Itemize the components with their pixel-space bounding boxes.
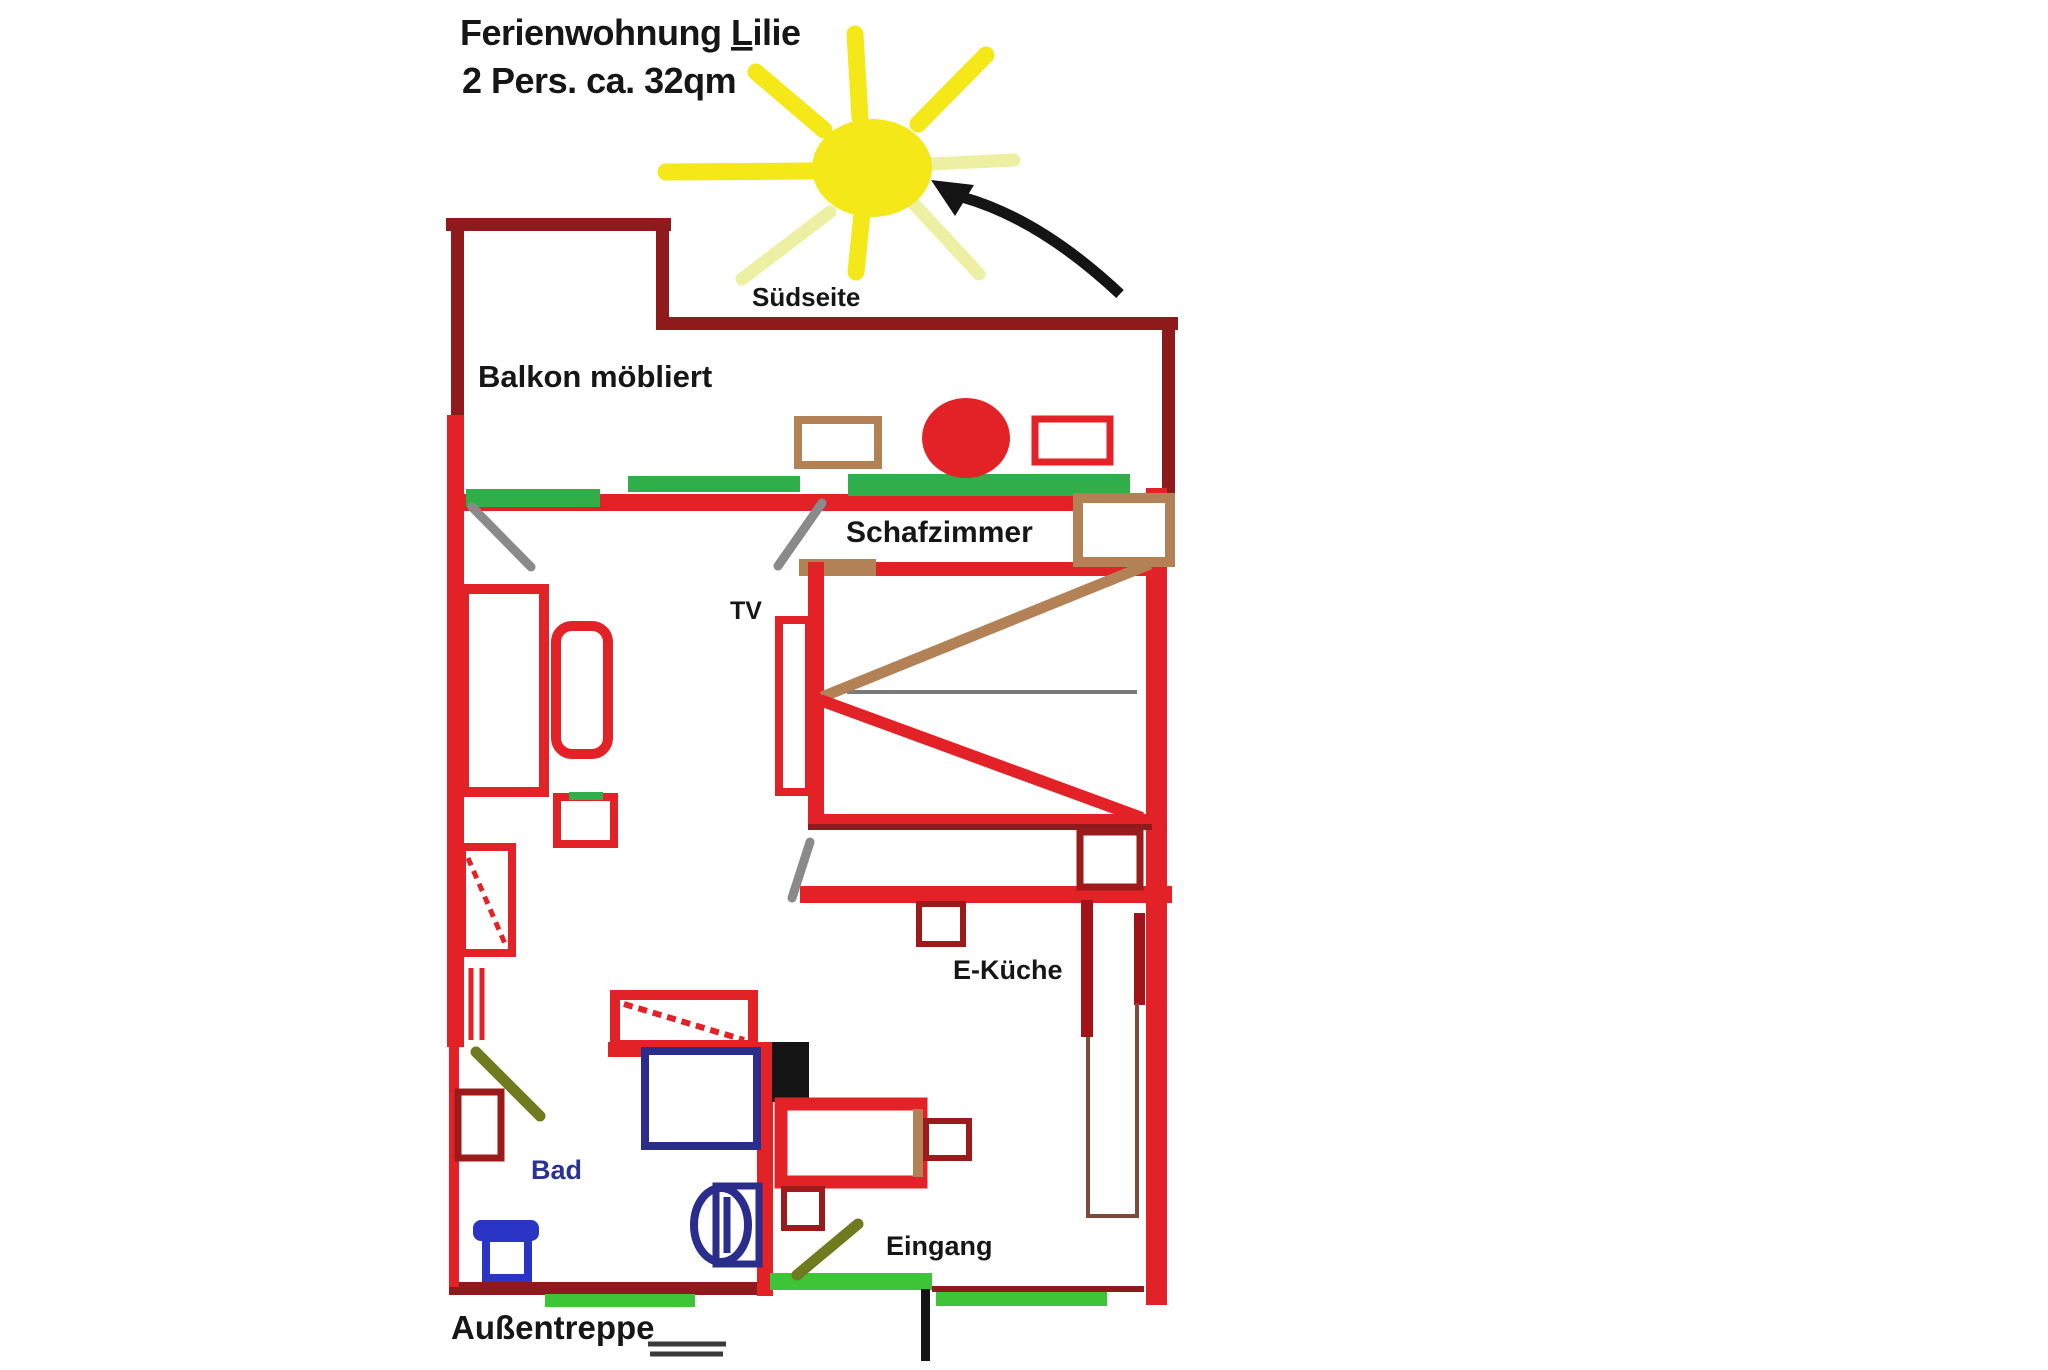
wall-left-lower	[449, 1047, 459, 1287]
floor-plan-page: Ferienwohnung Lilie 2 Pers. ca. 32qm Süd…	[0, 0, 2048, 1365]
label-south-side: Südseite	[752, 282, 860, 312]
bath-sink	[458, 1092, 501, 1158]
floor-plan-drawing: Ferienwohnung Lilie 2 Pers. ca. 32qm Süd…	[0, 0, 2048, 1365]
arrow-shaft	[962, 197, 1120, 294]
label-tv: TV	[730, 597, 762, 625]
wall-balcony-top-left	[446, 218, 671, 231]
toilet-bowl	[486, 1238, 528, 1278]
wall-right-main	[1146, 488, 1167, 1305]
door-swing-entrance	[797, 1224, 858, 1275]
sofa	[464, 589, 544, 792]
balcony-table	[798, 420, 878, 465]
bedroom-nightstand	[1080, 832, 1140, 887]
label-outdoor-stairs: Außentreppe	[451, 1309, 655, 1346]
sun-ray	[930, 160, 1014, 164]
bed-diagonal-brown	[822, 564, 1150, 697]
sun-ray	[918, 55, 986, 124]
label-balcony: Balkon möbliert	[478, 359, 712, 394]
coffee-table	[556, 626, 608, 754]
sun-ray	[914, 204, 979, 274]
bedroom-corner-window	[1078, 498, 1170, 562]
balcony-window-green-mid	[628, 476, 800, 492]
hall-small-cabinet	[784, 1189, 822, 1228]
entry-table-outline	[781, 1104, 921, 1182]
wall-bottom-right-thin	[932, 1286, 1144, 1292]
sun-core	[812, 119, 932, 217]
toilet	[473, 1220, 539, 1278]
bed	[799, 559, 1152, 830]
stove-black-block	[772, 1042, 809, 1102]
label-kitchen: E-Küche	[953, 955, 1063, 985]
kitchen-counter-outline	[1088, 1003, 1137, 1216]
outdoor-stairs-icon	[648, 1344, 726, 1354]
entry-table-brown-edge	[913, 1109, 923, 1177]
sun-ray	[756, 72, 824, 130]
door-swing-balcony-left	[472, 507, 531, 567]
label-bedroom: Schafzimmer	[846, 516, 1033, 549]
entrance-step-green	[936, 1292, 1107, 1306]
page-title: Ferienwohnung Lilie	[460, 12, 801, 53]
bed-bottom-rail	[808, 814, 1152, 825]
page-subtitle: 2 Pers. ca. 32qm	[462, 60, 736, 101]
sun-ray	[666, 171, 812, 172]
balcony-window-green-right	[848, 474, 1130, 496]
bed-diagonal-red	[820, 700, 1142, 818]
kitchen-small-cabinet-top	[919, 904, 963, 944]
kitchen-counter-bar	[1081, 900, 1093, 1037]
sun-ray	[742, 212, 830, 279]
shower-tray	[645, 1051, 757, 1146]
entry-table	[781, 1104, 923, 1182]
bath-vanity	[615, 995, 753, 1045]
tv-stand	[779, 620, 809, 792]
wall-right-inner-stripe	[1134, 913, 1145, 1005]
wall-top-main	[656, 317, 1178, 330]
kitchen-small-cabinet-mid	[926, 1121, 969, 1158]
wall-bottom-left	[449, 1282, 762, 1295]
label-entrance: Eingang	[886, 1231, 993, 1261]
side-table-green-top	[569, 792, 603, 800]
stairs-landing-green	[545, 1294, 695, 1307]
washing-machine	[694, 1186, 759, 1264]
door-swing-balcony-right	[778, 503, 822, 566]
direction-arrow-icon	[931, 180, 1120, 294]
entrance-door-post	[921, 1289, 930, 1361]
balcony-round-table	[922, 398, 1010, 478]
wall-balcony-left-upper	[451, 218, 464, 417]
wall-balcony-step	[656, 218, 669, 325]
balcony-door-green-left	[466, 489, 600, 507]
balcony-bench	[1035, 419, 1110, 462]
label-bathroom: Bad	[531, 1155, 582, 1185]
wall-right-upper	[1162, 317, 1175, 500]
sun-ray	[855, 34, 860, 118]
side-table	[557, 797, 614, 844]
sun-ray	[856, 214, 862, 272]
